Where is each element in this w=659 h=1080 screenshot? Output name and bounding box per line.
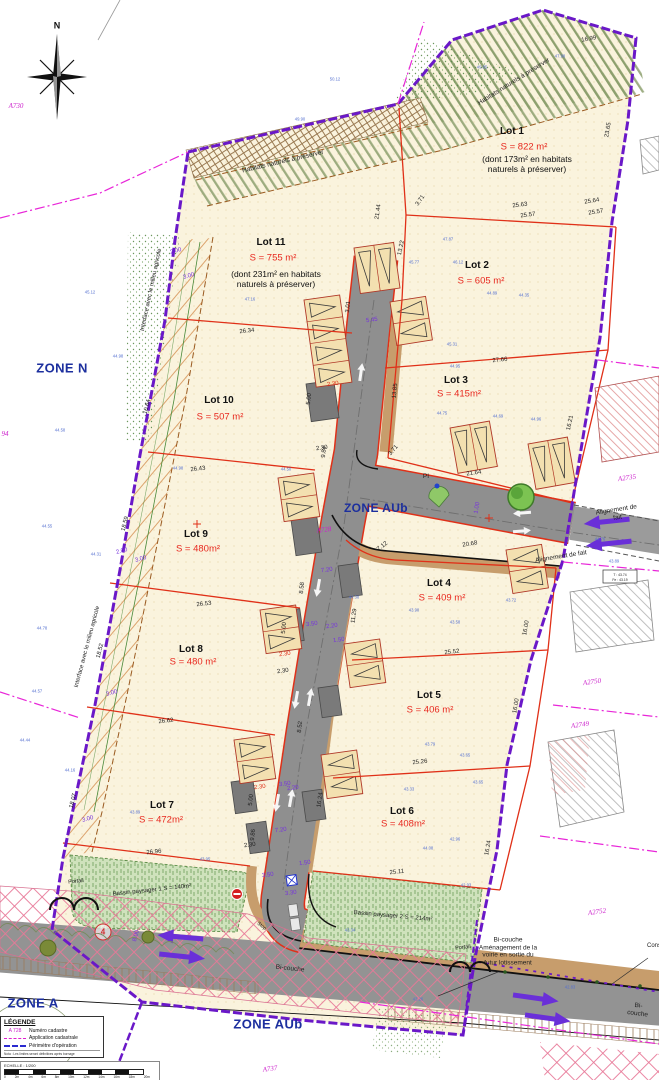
scale-tick: 14m (98, 1075, 104, 1079)
cadastral-line-swatch (4, 1038, 26, 1039)
scale-tick: 8m (55, 1075, 59, 1079)
scale-tick: 18m (129, 1075, 135, 1079)
legend-key-parcel: A 728 (4, 1028, 26, 1034)
levels-box (603, 570, 637, 583)
legend-title: LÉGENDE (4, 1019, 100, 1026)
scale-tick: 16m (114, 1075, 120, 1079)
scale-tick: 4m (28, 1075, 32, 1079)
scale-tick: 10m (68, 1075, 74, 1079)
scale-segment (88, 1070, 102, 1074)
scale-segment (46, 1070, 60, 1074)
scale-tick: 2m (15, 1075, 19, 1079)
legend-note: Nota : Les limites seront définitives ap… (4, 1050, 100, 1056)
scale-tick: 0 (4, 1075, 6, 1079)
scale-segment (19, 1070, 33, 1074)
legend-row-application: Application cadastrale (4, 1035, 100, 1041)
site-plan-page: ZONE NZONE AUbZONE AZONE AUbA73094A728A2… (0, 0, 659, 1080)
scale-segment (74, 1070, 88, 1074)
scale-bar: ECHELLE : 1/200 02m4m6m8m10m12m14m16m18m… (0, 1061, 160, 1080)
stop-sign-icon (232, 889, 243, 900)
scale-bar-ticks: 02m4m6m8m10m12m14m16m18m20m (4, 1075, 150, 1079)
scale-segment (115, 1070, 129, 1074)
north-compass (27, 34, 87, 120)
legend-label: Périmètre d'opération (29, 1043, 77, 1049)
legend-row-perimeter: Périmètre d'opération (4, 1043, 100, 1049)
scale-tick: 12m (83, 1075, 89, 1079)
legend-row-cadastre: A 728 Numéro cadastre (4, 1028, 100, 1034)
tree-icon (40, 940, 56, 956)
tree-icon (142, 931, 154, 943)
legend-label: Application cadastrale (29, 1035, 78, 1041)
scale-tick: 20m (144, 1075, 150, 1079)
network-box-icon (286, 875, 297, 886)
scale-segment (33, 1070, 47, 1074)
node-4-marker (95, 924, 111, 940)
plan-canvas (0, 0, 659, 1080)
scale-segment (5, 1070, 19, 1074)
scale-segment (129, 1070, 143, 1074)
tree-icon (508, 484, 534, 510)
scale-segment (102, 1070, 116, 1074)
legend-label: Numéro cadastre (29, 1028, 67, 1034)
legend: LÉGENDE A 728 Numéro cadastre Applicatio… (0, 1016, 104, 1058)
survey-line (98, 0, 120, 40)
scale-segment (60, 1070, 74, 1074)
scale-tick: 6m (41, 1075, 45, 1079)
scale-label: ECHELLE : 1/200 (4, 1063, 156, 1068)
perimeter-line-swatch (4, 1045, 26, 1047)
